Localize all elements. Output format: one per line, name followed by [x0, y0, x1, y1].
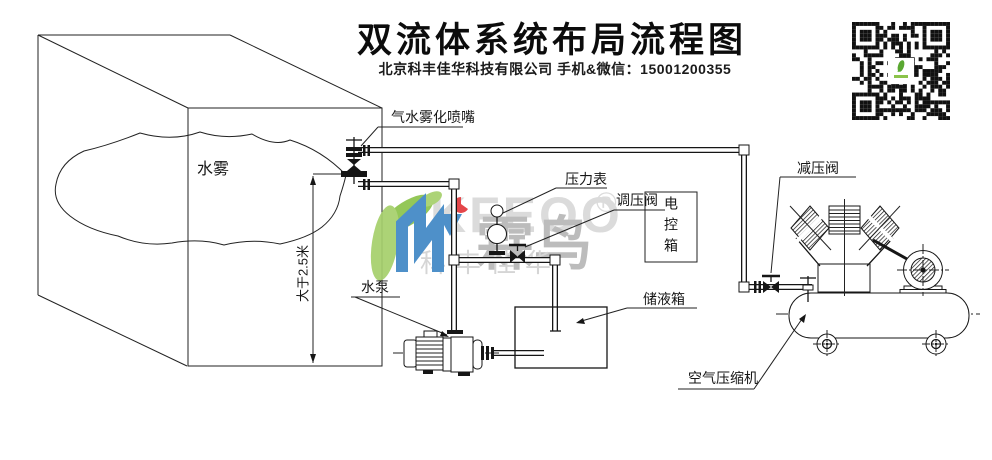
label-water-pump: 水泵 [361, 280, 389, 295]
control-box: 电控箱 [645, 192, 697, 262]
height-dimension-line [310, 174, 356, 363]
qr-code [852, 22, 950, 120]
flow-diagram-page: KFEOO ® 霖鸟 科丰佳华 [0, 0, 992, 460]
page-title: 双流体系统布局流程图 [328, 12, 776, 63]
label-pressure-gauge: 压力表 [565, 172, 607, 187]
room-box [38, 35, 382, 366]
label-reducing-valve: 减压阀 [797, 161, 839, 176]
label-control-box: 电控箱 [661, 196, 681, 259]
label-storage-tank: 储液箱 [643, 292, 685, 307]
label-water-mist: 水雾 [197, 161, 229, 179]
label-air-compressor: 空气压缩机 [688, 371, 758, 386]
water-pump [393, 330, 500, 376]
label-atomizing-nozzle: 气水雾化喷嘴 [391, 110, 475, 125]
air-compressor [776, 199, 980, 358]
qr-code-svg [852, 22, 950, 120]
compressor-motor [897, 244, 949, 296]
label-height-dimension: 大于2.5米 [293, 219, 312, 329]
company-contact-line: 北京科丰佳华科技有限公司 手机&微信：15001200355 [340, 59, 770, 79]
storage-tank-outline [515, 307, 607, 368]
